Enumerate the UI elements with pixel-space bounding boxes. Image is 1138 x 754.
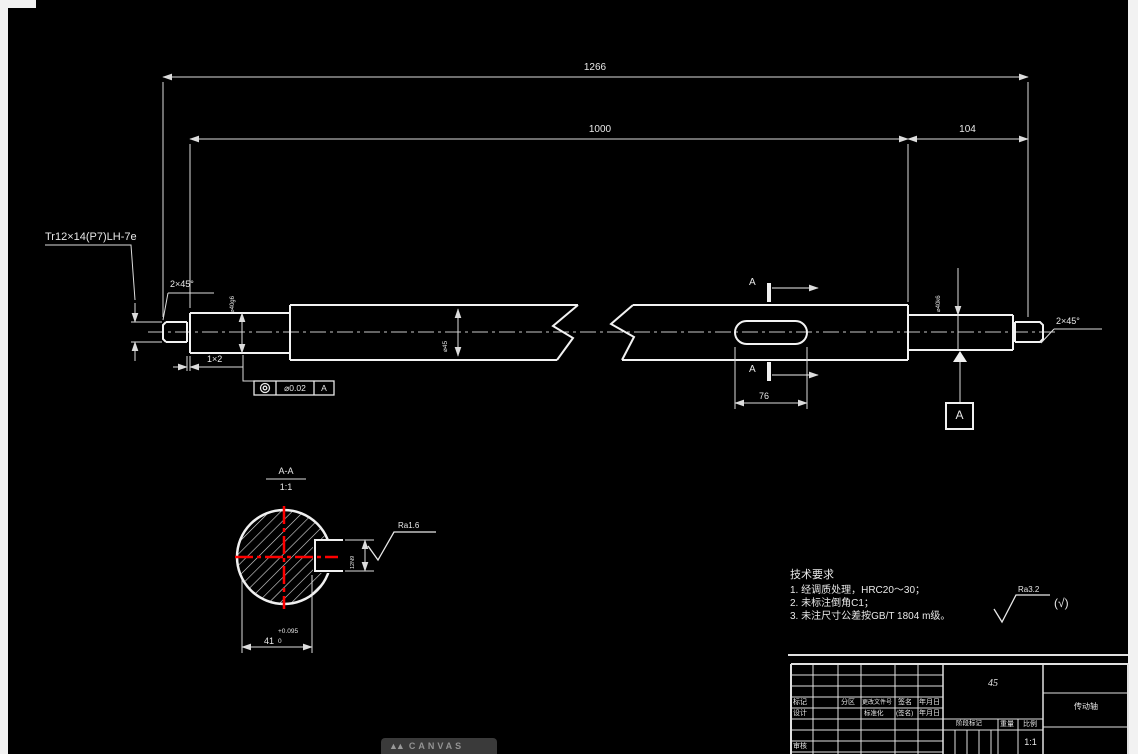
tech-req-item: 1. 经调质处理，HRC20～30； <box>790 586 925 596</box>
section-width-tol-lower: 0 <box>278 639 282 646</box>
keyway-length-label: 76 <box>750 392 778 401</box>
dia-left-journal-label: ⌀40g6 <box>230 296 236 313</box>
tb-scale-value: 1:1 <box>1018 738 1043 747</box>
tb-label-mark: 标记 <box>793 699 807 706</box>
section-width-tol-upper: +0.095 <box>278 629 298 636</box>
roughness-symbols <box>368 532 1050 622</box>
tb-label-scale: 比例 <box>1023 721 1037 728</box>
tech-req-item: 3. 未注尺寸公差按GB/T 1804 m级。 <box>790 612 950 622</box>
tb-label-date: 年月日 <box>919 699 940 706</box>
section-width-dim: 41 <box>264 637 274 646</box>
tb-label-date2: 年月日 <box>919 710 940 717</box>
tb-label-signature2: (签名) <box>896 711 913 718</box>
keyway-width-label: 12N9 <box>351 556 357 569</box>
section-roughness-label: Ra1.6 <box>398 522 419 530</box>
tolerance-frame-value: ⌀0.02 <box>276 384 314 393</box>
watermark-text: CANVAS <box>409 741 464 751</box>
tb-label-review: 审核 <box>793 743 807 750</box>
tb-part-name: 传动轴 <box>1058 703 1114 711</box>
tb-label-weight: 重量 <box>1000 721 1014 728</box>
datum-label: A <box>946 409 973 421</box>
general-roughness-suffix: (√) <box>1054 597 1069 609</box>
thread-callout: Tr12×14(P7)LH-7e <box>45 232 137 243</box>
cad-drawing-canvas[interactable]: 1266 1000 104 Tr12×14(P7)LH-7e 2×45° 1×2… <box>0 0 1138 754</box>
tb-label-stage-mark: 阶段标记 <box>956 721 982 728</box>
tech-req-title: 技术要求 <box>790 570 834 581</box>
chamfer-right-label: 2×45° <box>1056 317 1080 326</box>
dim-right-section-length: 104 <box>940 125 995 135</box>
dim-overall-length: 1266 <box>560 63 630 73</box>
tb-label-zone: 分区 <box>841 699 855 706</box>
tolerance-frame-datum: A <box>314 384 334 393</box>
dim-body-length: 1000 <box>565 125 635 135</box>
tb-label-standardization: 标准化 <box>864 711 884 718</box>
tb-label-change-file-no: 更改文件号 <box>862 700 892 706</box>
section-view-title: A-A <box>266 467 306 476</box>
dia-mid-label: ⌀45 <box>443 341 450 352</box>
dimension-lines <box>45 77 1102 653</box>
watermark: ▲▲ CANVAS <box>381 738 497 754</box>
general-roughness-label: Ra3.2 <box>1018 586 1039 594</box>
drawing-linework <box>0 0 1138 754</box>
dia-right-journal-label: ⌀40k6 <box>936 295 942 312</box>
tech-req-item: 2. 未标注倒角C1； <box>790 599 874 609</box>
tb-label-design: 设计 <box>793 710 807 717</box>
tb-material: 45 <box>975 679 1011 689</box>
groove-label: 1×2 <box>207 355 222 364</box>
section-view-scale: 1:1 <box>266 483 306 492</box>
section-cut-label-bottom: A <box>749 365 756 375</box>
section-view-linework <box>235 506 345 609</box>
section-cut-label-top: A <box>749 278 756 288</box>
watermark-logo-icon: ▲▲ <box>389 741 403 751</box>
chamfer-left-label: 2×45° <box>170 280 194 289</box>
tb-label-signature: 签名 <box>898 699 912 706</box>
